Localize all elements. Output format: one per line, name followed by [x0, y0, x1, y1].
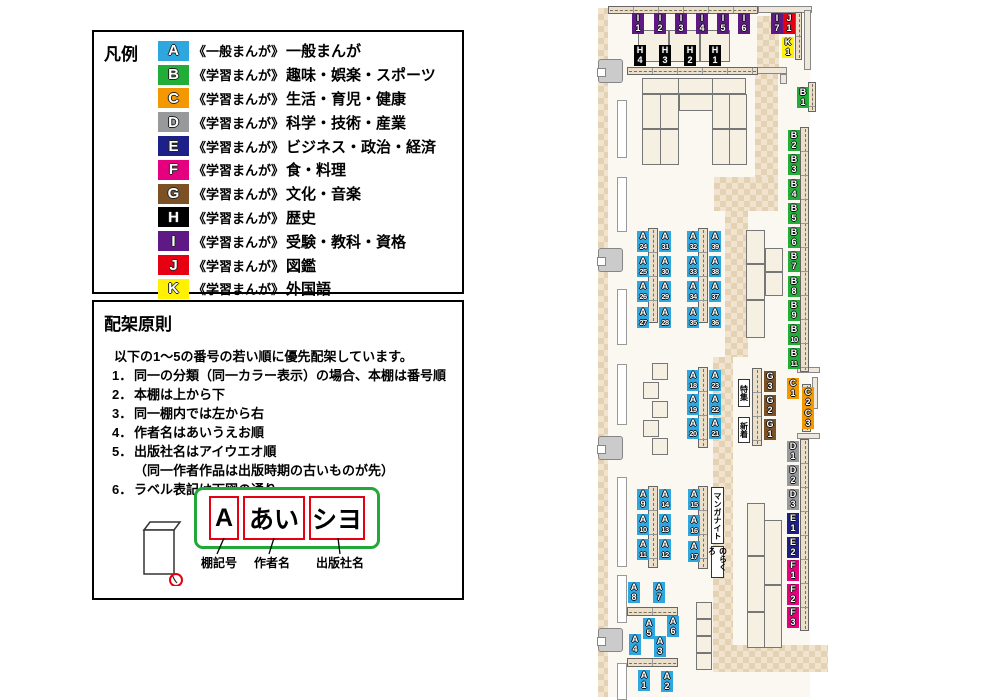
- shelf-label-a19: A19: [687, 394, 699, 415]
- floor-map: I1I2I3I4I5I6I7J1K1H4H3H2H1B1B2B3B4B5B6B7…: [0, 0, 1000, 700]
- shelf-label-a24: A24: [637, 231, 649, 252]
- sign-label: マンガナイト: [711, 487, 724, 544]
- table: [642, 78, 679, 94]
- shelf-label-a34: A34: [687, 281, 699, 302]
- shelf-label-a11: A11: [637, 539, 649, 560]
- sign-label: のらくろ: [711, 546, 724, 578]
- shelf-label-a28: A28: [659, 307, 671, 328]
- table: [712, 94, 730, 129]
- shelf-label-a30: A30: [659, 256, 671, 277]
- shelf-label-f2: F2: [787, 584, 799, 605]
- shelf-label-d3: D3: [787, 489, 799, 510]
- small-table: [652, 401, 668, 418]
- shelf-label-a37: A37: [709, 281, 721, 302]
- table: [679, 94, 713, 111]
- shelf-label-c2: C2: [802, 387, 814, 408]
- shelf-label-a27: A27: [637, 307, 649, 328]
- shelf-label-a22: A22: [709, 394, 721, 415]
- shelf-label-e2: E2: [787, 537, 799, 558]
- shelf-label-g3: G3: [764, 371, 776, 392]
- shelf-label-b11: B11: [788, 348, 800, 369]
- small-table: [652, 438, 668, 455]
- shelf-label-i3: I3: [675, 13, 687, 34]
- shelf-label-b10: B10: [788, 324, 800, 345]
- table: [642, 129, 661, 165]
- shelf-label-a3: A3: [654, 636, 666, 657]
- door-icon: [598, 59, 623, 83]
- shelf-label-f3: F3: [787, 607, 799, 628]
- table: [729, 129, 747, 165]
- table: [764, 585, 782, 648]
- shelf-label-e1: E1: [787, 513, 799, 534]
- shelf-label-a17: A17: [688, 541, 700, 562]
- shelf-label-a20: A20: [687, 418, 699, 439]
- bookshelf-strip: [795, 12, 802, 60]
- shelf-label-i7: I7: [771, 13, 783, 34]
- shelf-label-i1: I1: [632, 13, 644, 34]
- shelf-label-g1: G1: [764, 419, 776, 440]
- shelf-label-a31: A31: [659, 231, 671, 252]
- shelf-label-b4: B4: [788, 179, 800, 200]
- shelf-label-a6: A6: [667, 616, 679, 637]
- tile-walkway: [713, 645, 828, 672]
- small-table: [643, 382, 659, 399]
- table: [660, 94, 679, 129]
- shelf-label-i2: I2: [654, 13, 666, 34]
- bookshelf-strip: [627, 607, 678, 616]
- wall: [780, 74, 787, 84]
- shelf-label-i4: I4: [696, 13, 708, 34]
- table: [729, 94, 747, 129]
- shelf-label-h2: H2: [684, 45, 696, 66]
- bookshelf-strip: [627, 658, 678, 667]
- shelf-label-a4: A4: [629, 634, 641, 655]
- wall-segment: [617, 575, 627, 623]
- shelf-label-h4: H4: [634, 45, 646, 66]
- tile-walkway: [598, 8, 608, 697]
- shelf-label-a9: A9: [637, 489, 649, 510]
- shelf-label-h3: H3: [659, 45, 671, 66]
- shelf-label-a18: A18: [687, 370, 699, 391]
- shelf-label-a26: A26: [637, 281, 649, 302]
- tile-walkway: [725, 211, 748, 357]
- door-icon: [598, 436, 623, 460]
- shelf-label-j1: J1: [783, 13, 795, 34]
- table: [642, 94, 661, 129]
- table: [765, 272, 783, 296]
- small-table: [652, 363, 668, 380]
- bookshelf-strip: [800, 439, 809, 631]
- shelf-label-i6: I6: [738, 13, 750, 34]
- sign-label: 特集: [738, 379, 750, 407]
- shelf-label-a15: A15: [688, 489, 700, 510]
- bookshelf-strip: [648, 228, 658, 323]
- shelf-label-a29: A29: [659, 281, 671, 302]
- shelf-label-a33: A33: [687, 256, 699, 277]
- shelf-label-h1: H1: [709, 45, 721, 66]
- bookshelf-strip: [648, 486, 658, 568]
- shelf-label-a32: A32: [687, 231, 699, 252]
- table: [765, 248, 783, 272]
- shelf-label-a8: A8: [628, 582, 640, 603]
- bookshelf-strip: [752, 368, 762, 446]
- tile-walkway: [714, 177, 778, 211]
- small-table: [696, 602, 712, 619]
- shelf-label-a36: A36: [709, 307, 721, 328]
- bookshelf-strip: [698, 228, 708, 323]
- shelf-label-a10: A10: [637, 514, 649, 535]
- table: [746, 264, 765, 300]
- bookshelf-strip: [627, 67, 758, 75]
- door-icon: [598, 248, 623, 272]
- wall-segment: [617, 663, 627, 700]
- shelf-label-f1: F1: [787, 560, 799, 581]
- shelf-label-c1: C1: [787, 378, 799, 399]
- shelf-label-a7: A7: [653, 582, 665, 603]
- small-table: [696, 653, 712, 670]
- shelf-label-i5: I5: [717, 13, 729, 34]
- shelf-label-b8: B8: [788, 276, 800, 297]
- shelf-label-d1: D1: [787, 441, 799, 462]
- shelf-label-a2: A2: [661, 671, 673, 692]
- shelf-label-a23: A23: [709, 370, 721, 391]
- table: [712, 78, 746, 94]
- table: [746, 230, 765, 264]
- shelf-label-a39: A39: [709, 231, 721, 252]
- bookshelf-strip: [808, 82, 816, 112]
- small-table: [696, 636, 712, 653]
- library-floor-map-page: 凡例 A《一般まんが》一般まんがB《学習まんが》趣味・娯楽・スポーツC《学習まん…: [0, 0, 1000, 700]
- shelf-label-b2: B2: [788, 130, 800, 151]
- shelf-label-b1: B1: [797, 87, 809, 108]
- table: [678, 78, 713, 94]
- bookshelf-strip: [698, 367, 708, 448]
- shelf-label-b3: B3: [788, 154, 800, 175]
- table: [746, 300, 765, 338]
- bookshelf-strip: [800, 127, 809, 372]
- door-icon: [598, 628, 623, 652]
- wall: [804, 10, 811, 70]
- wall-segment: [617, 477, 627, 567]
- shelf-label-a21: A21: [709, 418, 721, 439]
- shelf-label-b7: B7: [788, 251, 800, 272]
- shelf-label-a13: A13: [659, 514, 671, 535]
- shelf-label-a38: A38: [709, 256, 721, 277]
- shelf-label-g2: G2: [764, 395, 776, 416]
- wall-segment: [617, 289, 627, 345]
- shelf-label-b9: B9: [788, 300, 800, 321]
- table: [747, 556, 765, 612]
- tile-walkway: [755, 73, 778, 178]
- table: [747, 503, 765, 556]
- shelf-label-d2: D2: [787, 465, 799, 486]
- table: [764, 520, 782, 585]
- shelf-label-a1: A1: [638, 670, 650, 691]
- shelf-label-c3: C3: [802, 408, 814, 429]
- shelf-label-a35: A35: [687, 307, 699, 328]
- small-table: [696, 619, 712, 636]
- wall-segment: [617, 177, 627, 232]
- shelf-label-a14: A14: [659, 489, 671, 510]
- shelf-label-a16: A16: [688, 515, 700, 536]
- shelf-label-a25: A25: [637, 256, 649, 277]
- wall-segment: [617, 364, 627, 425]
- small-table: [643, 420, 659, 437]
- shelf-label-a12: A12: [659, 539, 671, 560]
- shelf-label-b6: B6: [788, 227, 800, 248]
- table: [747, 612, 765, 648]
- table: [712, 129, 730, 165]
- wall-segment: [617, 100, 627, 158]
- wall: [757, 67, 787, 74]
- sign-label: 新着: [738, 417, 750, 443]
- shelf-label-b5: B5: [788, 203, 800, 224]
- shelf-label-k1: K1: [782, 37, 794, 58]
- table: [660, 129, 679, 165]
